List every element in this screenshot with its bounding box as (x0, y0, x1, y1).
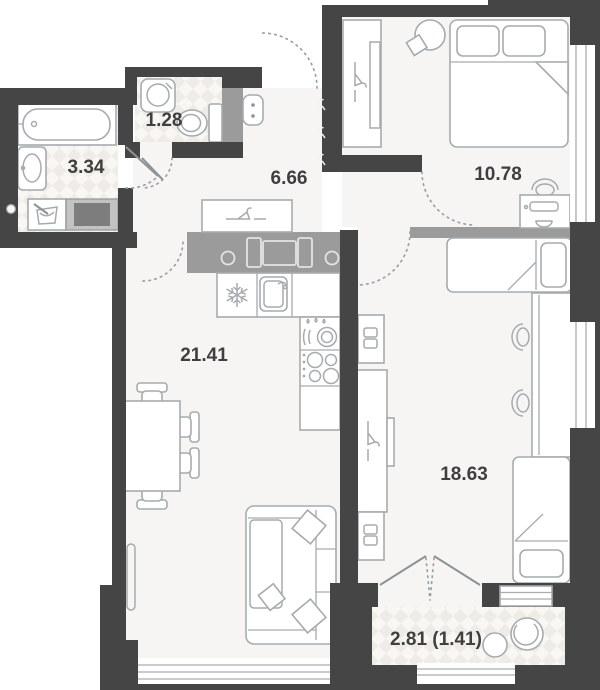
floor-plan: 3.34 1.28 6.66 10.78 21.41 18.63 2.81 (1… (0, 0, 600, 690)
wall (570, 0, 600, 48)
wall (340, 230, 358, 585)
wall (125, 142, 140, 158)
bedroom2-area-label: 18.63 (440, 464, 488, 485)
laundry-basket (28, 199, 66, 230)
nightstand (358, 512, 384, 560)
hallway-floor (137, 142, 172, 158)
wall (330, 155, 422, 172)
bedroom-area-label: 10.78 (474, 164, 522, 185)
single-bed-top (447, 238, 572, 292)
washing-machine (66, 199, 118, 230)
wc-area-label: 1.28 (146, 110, 183, 131)
bedroom2-window (570, 322, 600, 428)
wc-vent-shaft (222, 88, 243, 147)
wall (330, 583, 358, 690)
hallway-area-label: 6.66 (271, 168, 308, 189)
wall (112, 248, 126, 590)
hallway-wardrobe (202, 200, 292, 232)
living-room-window (138, 658, 330, 690)
wall (0, 232, 137, 248)
bathroom-area-label: 3.34 (68, 157, 105, 178)
kitchen-sink (260, 277, 287, 311)
kitchen-counter (217, 273, 340, 317)
balcony-window (417, 663, 515, 690)
wall (172, 142, 243, 158)
wall (125, 67, 222, 77)
bedroom-wardrobe (343, 20, 381, 147)
bathtub (18, 104, 116, 145)
living-door-floor (137, 232, 187, 248)
wall (112, 640, 138, 690)
bedroom-window (570, 45, 600, 222)
wall (118, 188, 133, 232)
wall (0, 88, 18, 248)
wall (222, 67, 262, 88)
sofa (246, 506, 336, 644)
floor-plan-page: 3.34 1.28 6.66 10.78 21.41 18.63 2.81 (1… (0, 0, 600, 690)
wall (570, 220, 600, 322)
double-bed (450, 20, 568, 147)
balcony-area-label: 2.81 (1.41) (390, 629, 482, 650)
wall (570, 428, 600, 590)
wall (322, 5, 342, 172)
kitchen-living-area-label: 21.41 (180, 345, 228, 366)
wc-sink (141, 79, 175, 112)
corridor-floor (342, 172, 422, 227)
entrance-door-swing (262, 33, 317, 88)
nightstand (358, 315, 384, 363)
wall (515, 665, 600, 690)
balcony-table (483, 633, 507, 657)
wall (358, 583, 378, 607)
wall (358, 607, 372, 690)
wall (372, 665, 417, 690)
single-bed-bottom (513, 457, 570, 583)
pipe-riser (7, 205, 16, 214)
wall (118, 105, 133, 145)
electrical-panel (243, 95, 263, 125)
balcony-chair (511, 618, 543, 650)
wall (0, 88, 135, 105)
bathroom-sink (18, 147, 46, 190)
dresser-overlay (500, 586, 552, 606)
kitchen-column (300, 317, 340, 430)
